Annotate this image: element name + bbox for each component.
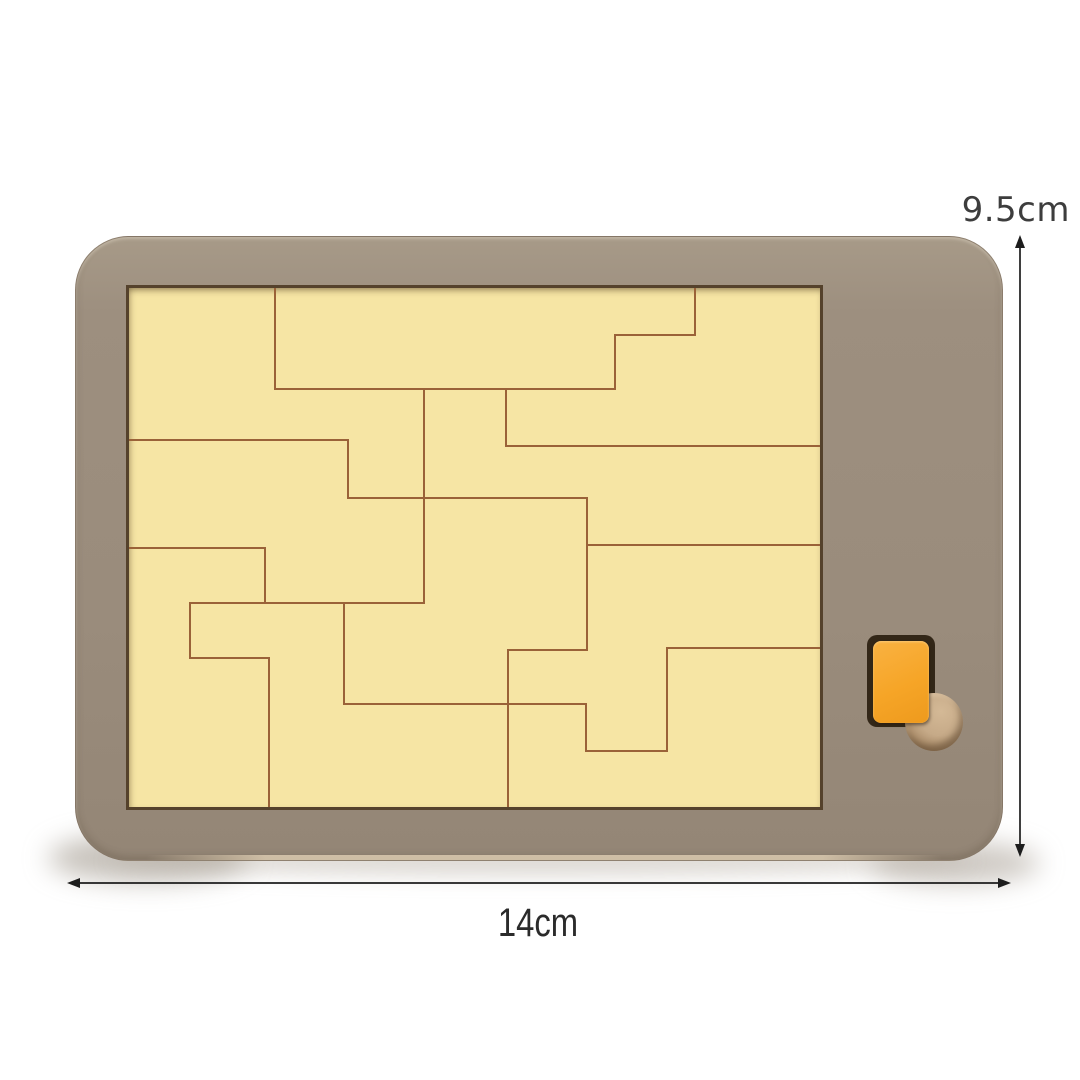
width-dimension-label: 14cm <box>456 901 620 946</box>
orange-accent-piece <box>873 641 929 723</box>
width-dimension-arrow <box>66 874 1012 892</box>
puzzle-board <box>75 236 1003 861</box>
puzzle-pieces-outlines <box>129 288 820 807</box>
height-dimension-label: 9.5cm <box>940 190 1070 230</box>
puzzle-tray <box>126 285 823 810</box>
product-photo: 9.5cm 14cm <box>0 0 1080 1080</box>
height-dimension-arrow <box>1011 234 1029 858</box>
